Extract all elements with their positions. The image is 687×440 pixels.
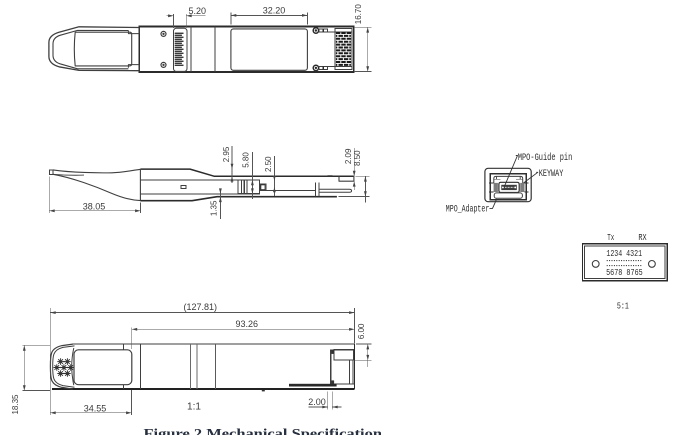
svg-text:18.35: 18.35 <box>11 394 20 415</box>
svg-text:5.80: 5.80 <box>242 152 251 168</box>
svg-text:5678 8765: 5678 8765 <box>606 268 643 278</box>
svg-text:(127.81): (127.81) <box>184 302 218 312</box>
svg-text:6.00: 6.00 <box>357 323 366 339</box>
svg-text:RX: RX <box>638 233 647 243</box>
svg-text:1:1: 1:1 <box>187 401 201 412</box>
svg-text:2.50: 2.50 <box>264 156 273 172</box>
svg-text:8.50: 8.50 <box>353 150 362 166</box>
svg-text:5.20: 5.20 <box>189 6 207 16</box>
svg-text:Figure 2 Mechanical Specificat: Figure 2 Mechanical Specification <box>144 426 383 435</box>
svg-text:2.95: 2.95 <box>222 146 231 162</box>
svg-text:MPO_Adapter: MPO_Adapter <box>446 204 490 216</box>
svg-text:Tx: Tx <box>607 233 614 243</box>
svg-text:MPO-Guide pin: MPO-Guide pin <box>518 152 573 164</box>
svg-text:1.35: 1.35 <box>209 200 218 216</box>
svg-text:34.55: 34.55 <box>84 403 107 413</box>
svg-text:38.05: 38.05 <box>83 202 106 212</box>
svg-text:2.09: 2.09 <box>344 148 353 164</box>
svg-text:2.00: 2.00 <box>308 397 326 407</box>
svg-text:5:1: 5:1 <box>617 300 629 311</box>
svg-text:93.26: 93.26 <box>236 319 259 329</box>
svg-text:16.70: 16.70 <box>354 4 363 25</box>
svg-text:KEYWAY: KEYWAY <box>539 169 564 180</box>
svg-text:32.20: 32.20 <box>263 6 286 16</box>
svg-text:1234 4321: 1234 4321 <box>606 249 642 259</box>
